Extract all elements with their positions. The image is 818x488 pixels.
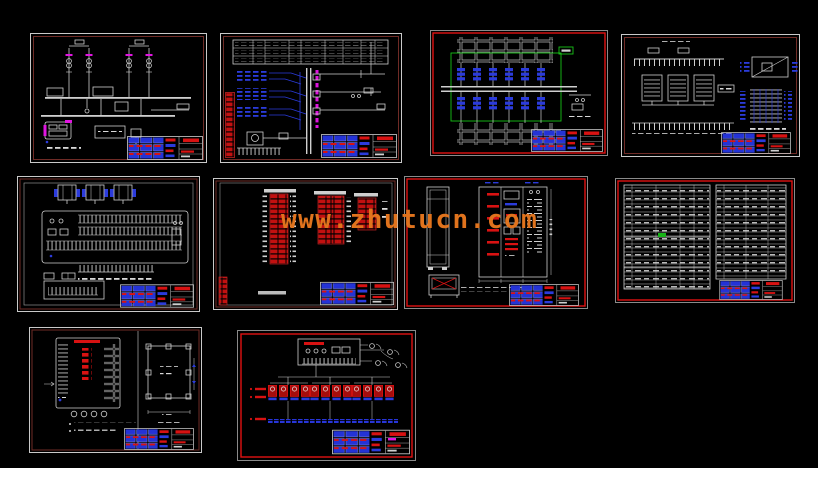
title-block [120, 285, 193, 307]
metering-cluster [569, 95, 591, 117]
device-group-2 [310, 385, 351, 400]
transformer-feeder-icon [126, 48, 133, 78]
sheet-8-drawing [616, 179, 794, 302]
double-bus [441, 86, 577, 92]
title-block [531, 130, 602, 152]
title-block [333, 430, 410, 454]
sheet-9-drawing [30, 328, 201, 452]
breaker-chain [313, 70, 320, 128]
title-block [125, 428, 194, 449]
group-labels [267, 401, 398, 423]
controller-face-view [44, 338, 120, 417]
highlighted-cell [658, 233, 666, 237]
transformer-feeder-icon [146, 48, 153, 78]
sheet-controller-mounting-detail[interactable] [29, 327, 202, 453]
device-group-3 [352, 385, 393, 400]
transformer-feeder-icon [66, 48, 73, 78]
sheet-power-single-line-diagram[interactable] [30, 33, 207, 163]
blue-wiring-groups [235, 70, 306, 130]
sheet-equipment-material-list[interactable] [615, 178, 795, 303]
note-text [45, 146, 81, 149]
device-group-1 [268, 385, 309, 400]
sheet-5-drawing [18, 177, 199, 311]
relay-frames [642, 75, 714, 105]
transformer-feeder-icon [86, 48, 93, 78]
bottom-terminal-row [632, 123, 734, 136]
title-block [720, 280, 783, 299]
head-end-unit [298, 339, 360, 365]
bottom-white-strip [0, 468, 818, 488]
cabinet-base-detail [429, 275, 459, 298]
sheet-panel-terminal-layout[interactable] [17, 176, 200, 312]
contact-matrix-top [457, 37, 553, 63]
terminal-list-grid [740, 89, 792, 123]
bus-bars [41, 97, 191, 117]
top-devices [54, 185, 136, 204]
mounting-plan-view [146, 344, 196, 425]
small-tables [44, 273, 104, 299]
motor-circuit [247, 132, 306, 145]
generator-unit [44, 120, 73, 143]
lower-terminal-row [78, 265, 154, 280]
watermark-text: www.zhutucn.com [281, 205, 538, 235]
relay-label [718, 85, 734, 92]
sheet-3-drawing [431, 31, 607, 155]
terminal-comb [237, 148, 281, 155]
material-table-left [624, 185, 710, 289]
network-trunk [270, 365, 392, 385]
sheet-feeder-breaker-diagram[interactable] [430, 30, 608, 156]
vertical-bus [306, 68, 311, 154]
sheet-6-drawing [214, 179, 397, 309]
sheet-1-drawing [31, 34, 206, 162]
header-table [233, 40, 388, 64]
drawing-label [258, 291, 286, 295]
bus-devices [47, 87, 189, 113]
sheet-system-network-diagram[interactable] [237, 330, 416, 461]
incoming-feeders [66, 40, 153, 97]
cad-multisheet-preview: www.zhutucn.com [0, 0, 818, 468]
revision-strip [226, 93, 235, 158]
sheet-4-drawing [622, 35, 799, 156]
title-block [722, 132, 791, 153]
breaker-columns [457, 63, 545, 123]
title-block [322, 135, 397, 158]
sheet-terminal-strip-tables[interactable] [213, 178, 398, 310]
sheet-control-schematic[interactable] [220, 33, 402, 163]
title-block-magenta-mark [388, 438, 396, 440]
title-block [128, 137, 203, 160]
sheet-terminal-wiring-detail[interactable] [621, 34, 800, 157]
material-table-right [716, 185, 786, 279]
title-block [320, 282, 393, 304]
device-wiring-box [740, 57, 798, 77]
revision-strip [219, 277, 227, 305]
sheet-2-drawing [221, 34, 401, 162]
left-legend [250, 388, 266, 420]
panel-outline [42, 211, 188, 263]
top-bus-with-taps [634, 41, 724, 66]
sheet-10-drawing [238, 331, 415, 460]
title-block [510, 284, 579, 305]
sheet-cabinet-elevation[interactable] [404, 176, 588, 309]
sheet-7-drawing [405, 177, 587, 308]
field-instruments [360, 344, 407, 368]
caption-text [750, 127, 786, 130]
